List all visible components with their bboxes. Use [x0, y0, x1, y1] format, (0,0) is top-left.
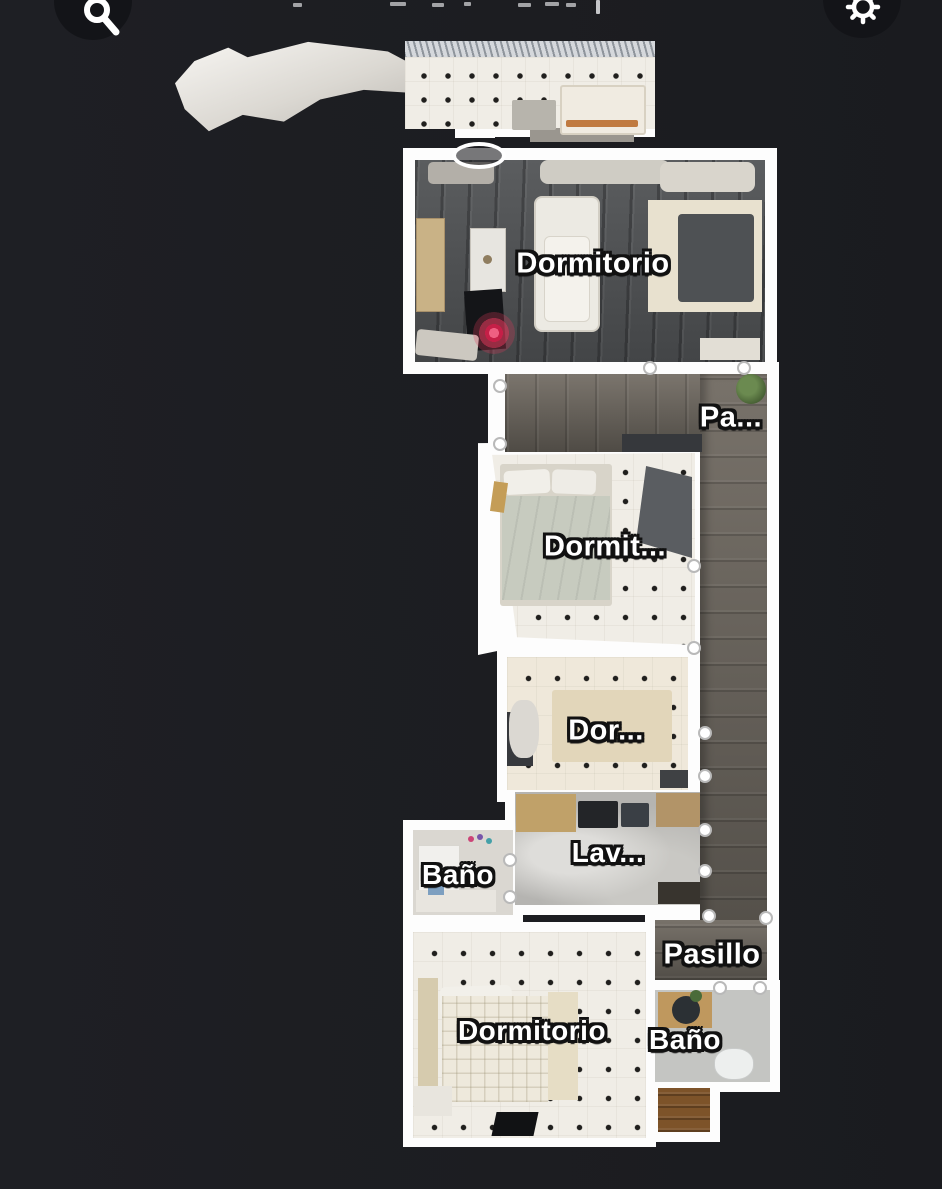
side-furniture	[414, 1086, 452, 1116]
dark-corner-item	[658, 882, 700, 904]
bench	[700, 338, 760, 360]
gear-icon	[840, 0, 886, 36]
terrace-bed-blanket	[566, 120, 638, 127]
room-label-dormitorio-top[interactable]: Dormitorio	[516, 248, 669, 281]
search-icon	[80, 0, 124, 40]
floorplan-view: Dormitorio Pa... Dormit... Dor... Lav...…	[0, 0, 942, 1189]
terrace-bed	[560, 85, 646, 135]
headboard	[418, 978, 438, 1086]
room-label-dormitorio-bottom[interactable]: Dormitorio	[458, 1015, 606, 1047]
dresser	[470, 228, 506, 292]
door-hinge-dot	[698, 864, 712, 878]
door-hinge-dot	[503, 853, 517, 867]
room-label-lav[interactable]: Lav...	[572, 837, 645, 869]
door-hinge-dot	[698, 726, 712, 740]
dark-floor-item	[491, 1112, 538, 1136]
wood-counter	[516, 794, 576, 832]
terrace-crate	[512, 100, 556, 130]
search-button[interactable]	[54, 0, 132, 40]
corridor-floor[interactable]	[700, 374, 767, 978]
room-label-bano-bottom[interactable]: Baño	[649, 1024, 721, 1056]
checkered-mattress	[442, 996, 548, 1102]
wooden-table	[416, 218, 445, 312]
chair	[509, 700, 539, 758]
door-hinge-dot	[687, 641, 701, 655]
curtain-blob	[660, 162, 755, 192]
door-hinge-dot	[698, 769, 712, 783]
door-hinge-dot	[698, 823, 712, 837]
dining-table	[678, 214, 754, 302]
washing-machine	[578, 801, 618, 828]
room-label-pasillo-lower[interactable]: Pasillo	[664, 939, 761, 972]
pillow	[503, 469, 550, 495]
appliance	[621, 803, 649, 827]
potted-plant	[736, 374, 766, 404]
door-hinge-dot	[643, 361, 657, 375]
pillow	[552, 469, 597, 495]
bano-notch-floor[interactable]	[658, 1088, 710, 1132]
door-hinge-dot	[493, 437, 507, 451]
toiletry-dot	[468, 836, 474, 842]
door-swing-marker	[452, 142, 506, 169]
door-hinge-dot	[713, 981, 727, 995]
door-hinge-dot	[493, 379, 507, 393]
door-hinge-dot	[687, 559, 701, 573]
room-label-dormit[interactable]: Dormit...	[544, 531, 666, 564]
wood-shelf	[656, 793, 700, 827]
room-label-bano-left[interactable]: Baño	[422, 859, 494, 891]
settings-button[interactable]	[823, 0, 901, 38]
terrace-scan-fragment	[175, 40, 417, 136]
toiletry-dot	[486, 838, 492, 844]
door-hinge-dot	[753, 981, 767, 995]
door-hinge-dot	[759, 911, 773, 925]
door-hinge-dot	[503, 890, 517, 904]
room-label-pasillo-upper[interactable]: Pa...	[700, 402, 762, 435]
toiletry-dot	[477, 834, 483, 840]
camera-position-marker[interactable]	[473, 312, 515, 354]
door-hinge-dot	[702, 909, 716, 923]
dark-corner-item	[660, 770, 688, 788]
hall-cabinet	[622, 434, 702, 452]
door-hinge-dot	[737, 361, 751, 375]
plant-sprig	[690, 990, 702, 1002]
room-label-dor[interactable]: Dor...	[568, 715, 644, 748]
curtain-blob	[540, 160, 670, 184]
